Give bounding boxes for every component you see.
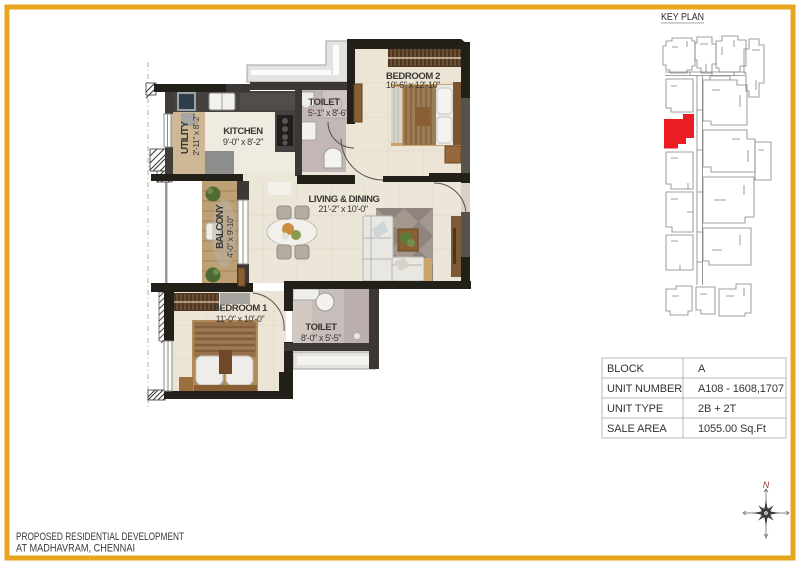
svg-text:1055.00 Sq.Ft: 1055.00 Sq.Ft xyxy=(698,423,766,435)
svg-text:10'-6" x 12'-10": 10'-6" x 12'-10" xyxy=(386,80,440,90)
svg-text:5'-1" x 8'-6": 5'-1" x 8'-6" xyxy=(308,108,348,118)
svg-text:KEY PLAN: KEY PLAN xyxy=(661,11,704,23)
svg-text:SALE AREA: SALE AREA xyxy=(607,423,667,435)
svg-text:UTILITY: UTILITY xyxy=(180,121,191,154)
svg-text:AT MADHAVRAM, CHENNAI: AT MADHAVRAM, CHENNAI xyxy=(16,543,135,555)
svg-text:BEDROOM 1: BEDROOM 1 xyxy=(213,303,268,314)
svg-text:2B + 2T: 2B + 2T xyxy=(698,403,737,415)
svg-text:N: N xyxy=(763,480,770,490)
svg-text:TOILET: TOILET xyxy=(308,97,340,108)
svg-text:UNIT TYPE: UNIT TYPE xyxy=(607,403,663,415)
svg-text:2'-11" x 8'-2": 2'-11" x 8'-2" xyxy=(191,114,201,156)
svg-text:4'-0" x 9'-10": 4'-0" x 9'-10" xyxy=(225,216,235,258)
svg-text:8'-0" x 5'-5": 8'-0" x 5'-5" xyxy=(301,333,341,343)
svg-text:21'-2" x 10'-0": 21'-2" x 10'-0" xyxy=(318,204,368,214)
svg-text:A: A xyxy=(698,363,706,375)
svg-text:9'-0" x 8'-2": 9'-0" x 8'-2" xyxy=(223,137,263,147)
svg-text:TOILET: TOILET xyxy=(305,322,337,333)
svg-text:KITCHEN: KITCHEN xyxy=(223,126,263,137)
svg-text:A108 - 1608,1707: A108 - 1608,1707 xyxy=(698,383,784,395)
svg-text:11'-0" x 10'-0": 11'-0" x 10'-0" xyxy=(216,314,265,324)
svg-text:UNIT NUMBER: UNIT NUMBER xyxy=(607,383,682,395)
svg-text:BLOCK: BLOCK xyxy=(607,363,645,375)
svg-text:PROPOSED RESIDENTIAL DEVELOPME: PROPOSED RESIDENTIAL DEVELOPMENT xyxy=(16,531,184,543)
